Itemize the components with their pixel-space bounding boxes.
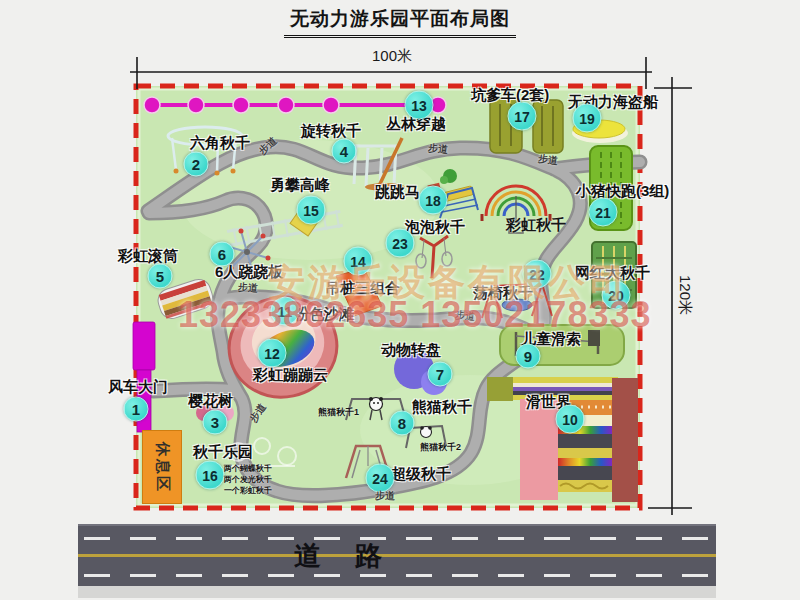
feature-marker-17: 17: [508, 102, 537, 131]
road: 道路: [78, 524, 716, 588]
road-label: 道路: [78, 538, 716, 574]
extra-label-0: 彩虹秋千: [506, 216, 566, 235]
hanging-pile-combo: [336, 268, 382, 316]
feature-label-11: 粉色沙滩: [294, 306, 354, 322]
windmill-gate: [133, 322, 155, 432]
kart-tracks: [490, 98, 563, 153]
feature-label-2: 六角秋千: [190, 135, 250, 151]
extra-label-1: 熊猫秋千1: [318, 406, 359, 419]
page-title: 无动力游乐园平面布局图: [0, 6, 800, 38]
width-dimension-label: 100米: [372, 47, 412, 66]
height-dimension-label: 120米: [675, 275, 694, 315]
feature-label-1: 风车大门: [108, 379, 168, 395]
feature-marker-9: 9: [516, 344, 541, 369]
feature-marker-19: 19: [573, 104, 602, 133]
pink-beach: [220, 287, 346, 407]
feature-label-15: 勇攀高峰: [270, 177, 330, 193]
extra-label-2: 熊猫秋千2: [420, 441, 461, 454]
walkway-label-2: 步道: [537, 152, 559, 169]
feature-label-9: 儿童滑索: [521, 331, 581, 347]
swing-chair: [482, 284, 552, 318]
climbing-peak: [225, 199, 344, 250]
feature-label-5: 彩虹滚筒: [118, 248, 178, 264]
feature-marker-21: 21: [589, 198, 618, 227]
panda-swing-1: [346, 397, 406, 420]
pirate-ship: [572, 120, 628, 143]
panda-swing-2: [406, 426, 446, 448]
six-seesaw: [224, 229, 271, 276]
feature-marker-24: 24: [366, 464, 395, 493]
hexagon-swing: [168, 127, 242, 176]
feature-label-3: 樱花树: [188, 393, 233, 409]
feature-label-17: 坑爹车(2套): [471, 87, 549, 103]
feature-label-18: 跳跳马: [375, 184, 420, 200]
walkway-label-4: 步道: [454, 308, 475, 324]
super-swing: [346, 446, 390, 478]
feature-label-20: 网红大秋千: [575, 265, 650, 281]
watermark-phones: 13233862635 13502178333: [178, 294, 651, 336]
park-map-poster: 无动力游乐园平面布局图 100米 120米: [0, 0, 800, 600]
feature-marker-8: 8: [390, 411, 415, 436]
feature-marker-12: 12: [258, 339, 287, 368]
slide-world: [487, 377, 638, 502]
extra-label-5: 一个彩虹秋千: [224, 485, 272, 496]
feature-marker-16: 16: [196, 461, 225, 490]
feature-marker-3: 3: [203, 410, 228, 435]
feature-marker-2: 2: [184, 152, 209, 177]
rest-area: 休息区: [142, 430, 182, 504]
feature-label-19: 无动力海盗船: [568, 94, 658, 110]
rest-area-label: 休息区: [153, 442, 172, 493]
feature-marker-10: 10: [556, 405, 585, 434]
walkway-label-0: 步道: [256, 134, 280, 158]
walkway-label-5: 步道: [247, 401, 270, 425]
feature-marker-18: 18: [419, 186, 448, 215]
feature-label-22: 荡椅秋千: [473, 285, 533, 301]
rainbow-swing: [482, 186, 550, 233]
animal-carousel: [394, 349, 447, 395]
feature-label-24: 超级秋千: [391, 466, 451, 482]
bubble-swing: [416, 236, 452, 278]
road-lane-line-bottom: [84, 574, 710, 577]
feature-label-16: 秋千乐园: [193, 444, 253, 460]
feature-label-12: 彩虹蹦蹦云: [253, 367, 328, 383]
feature-marker-11: 11: [271, 297, 300, 326]
jumping-horse: [427, 169, 478, 218]
pig-run-track: [590, 146, 632, 230]
feature-marker-7: 7: [428, 362, 453, 387]
extra-label-3: 两个蝴蝶秋千: [224, 463, 272, 474]
rainbow-drum: [155, 276, 216, 321]
dimension-lines: [130, 57, 692, 515]
feature-marker-13: 13: [405, 91, 434, 120]
extra-label-4: 两个发光秋千: [224, 474, 272, 485]
watermark-company: 安游乐设备有限公司: [268, 258, 628, 308]
rotating-swing: [352, 138, 405, 191]
sakura-tree: [196, 396, 234, 430]
feature-marker-20: 20: [602, 281, 631, 310]
feature-marker-14: 14: [344, 247, 373, 276]
walk-paths: [148, 147, 640, 496]
feature-label-6: 6人跷跷板: [215, 264, 283, 280]
feature-marker-23: 23: [386, 229, 415, 258]
walkway-label-3: 步道: [238, 280, 259, 295]
road-shoulder: [78, 586, 716, 598]
feature-marker-5: 5: [148, 264, 173, 289]
feature-label-13: 丛林穿越: [386, 116, 446, 132]
walkway-label-6: 步道: [375, 489, 395, 504]
feature-label-4: 旋转秋千: [301, 123, 361, 139]
feature-marker-1: 1: [124, 397, 149, 422]
walkway-label-1: 步道: [427, 141, 448, 157]
feature-label-21: 小猪快跑(3组): [576, 183, 669, 199]
kids-zipline: [500, 325, 624, 365]
feature-marker-22: 22: [523, 260, 552, 289]
jungle-crossing-chain: [144, 97, 446, 113]
feature-label-23: 泡泡秋千: [405, 219, 465, 235]
feature-label-14: 吊桩三组合: [325, 280, 400, 296]
feature-marker-6: 6: [210, 242, 235, 267]
feature-label-10: 滑世界: [526, 394, 571, 410]
feature-label-7: 动物转盘: [381, 342, 441, 358]
park-area: [136, 86, 640, 508]
feature-label-8: 熊猫秋千: [412, 399, 472, 415]
feature-marker-4: 4: [332, 139, 357, 164]
feature-marker-15: 15: [297, 196, 326, 225]
page-title-text: 无动力游乐园平面布局图: [284, 6, 516, 38]
swing-garden-sketch: [229, 438, 296, 466]
big-net-swing: [592, 242, 636, 308]
